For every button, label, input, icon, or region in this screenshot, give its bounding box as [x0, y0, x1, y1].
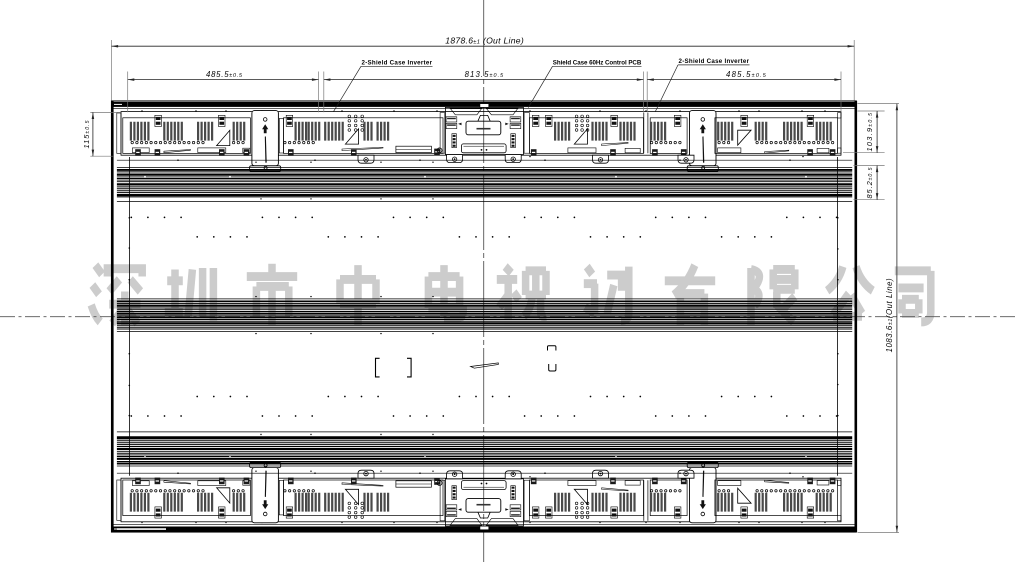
- svg-text:Shield Case 60Hz Control PCB: Shield Case 60Hz Control PCB: [553, 60, 642, 67]
- svg-text:1878.6±1 (Out Line): 1878.6±1 (Out Line): [445, 36, 524, 46]
- svg-text:813.5±0.5: 813.5±0.5: [465, 70, 505, 79]
- svg-text:1083.6±1(Out Line): 1083.6±1(Out Line): [885, 278, 894, 352]
- svg-text:2-Shield Case Inverter: 2-Shield Case Inverter: [679, 58, 750, 65]
- svg-text:2-Shield Case Inverter: 2-Shield Case Inverter: [362, 60, 433, 67]
- svg-text:485.5±0.5: 485.5±0.5: [206, 70, 243, 79]
- svg-text:115±0.5: 115±0.5: [82, 120, 91, 148]
- svg-text:85.2±0.5: 85.2±0.5: [865, 167, 874, 198]
- svg-text:485.5±0.5: 485.5±0.5: [726, 70, 767, 79]
- svg-text:103.9±0.5: 103.9±0.5: [865, 113, 874, 152]
